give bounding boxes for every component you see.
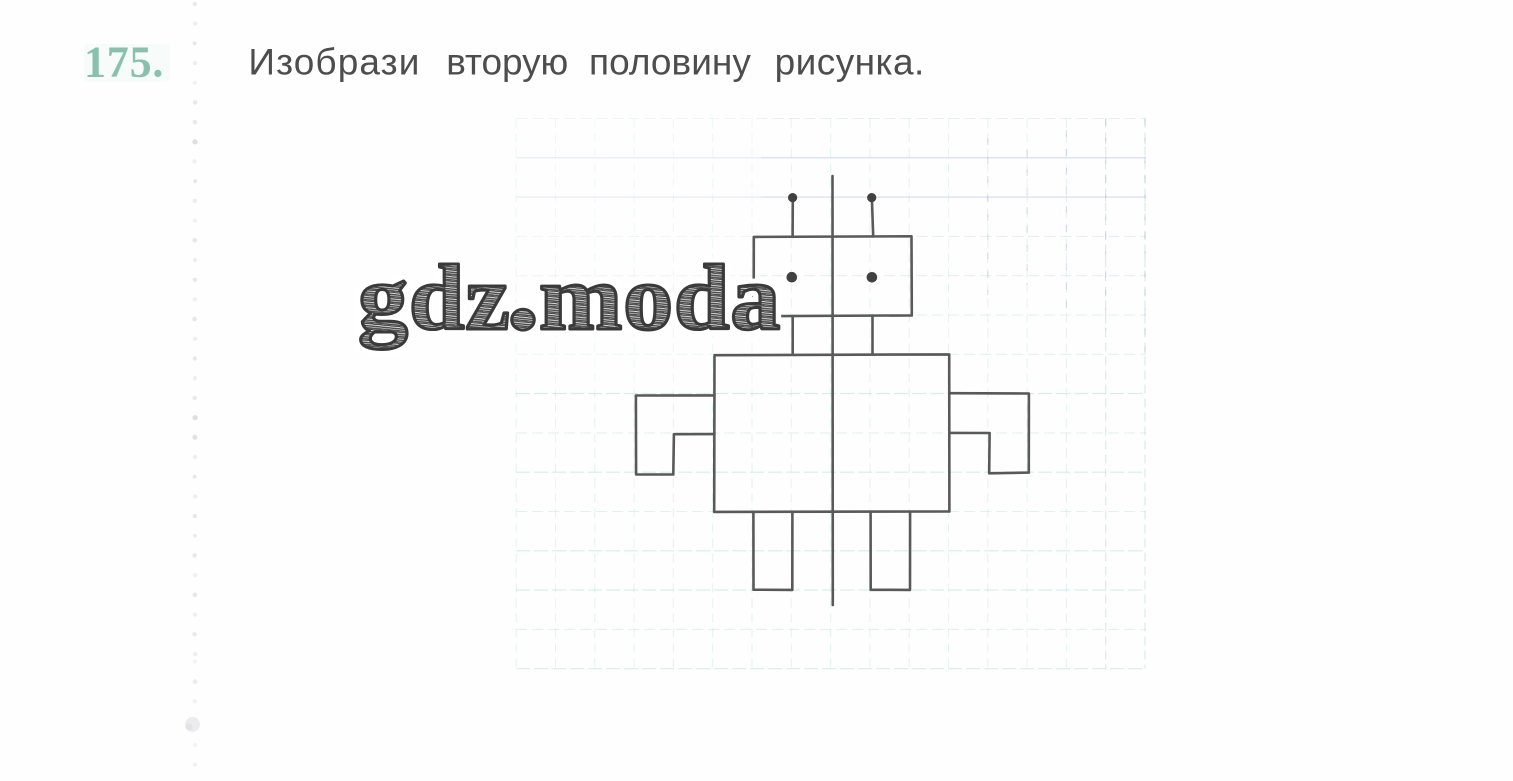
svg-text:половину: половину (589, 41, 751, 82)
svg-text:175.: 175. (84, 37, 164, 86)
svg-text:moda: moda (539, 246, 781, 349)
svg-text:вторую: вторую (446, 41, 568, 82)
svg-text:gdz: gdz (358, 246, 511, 349)
svg-text:Изобрази: Изобрази (248, 41, 420, 82)
svg-text:рисунка.: рисунка. (775, 41, 925, 82)
